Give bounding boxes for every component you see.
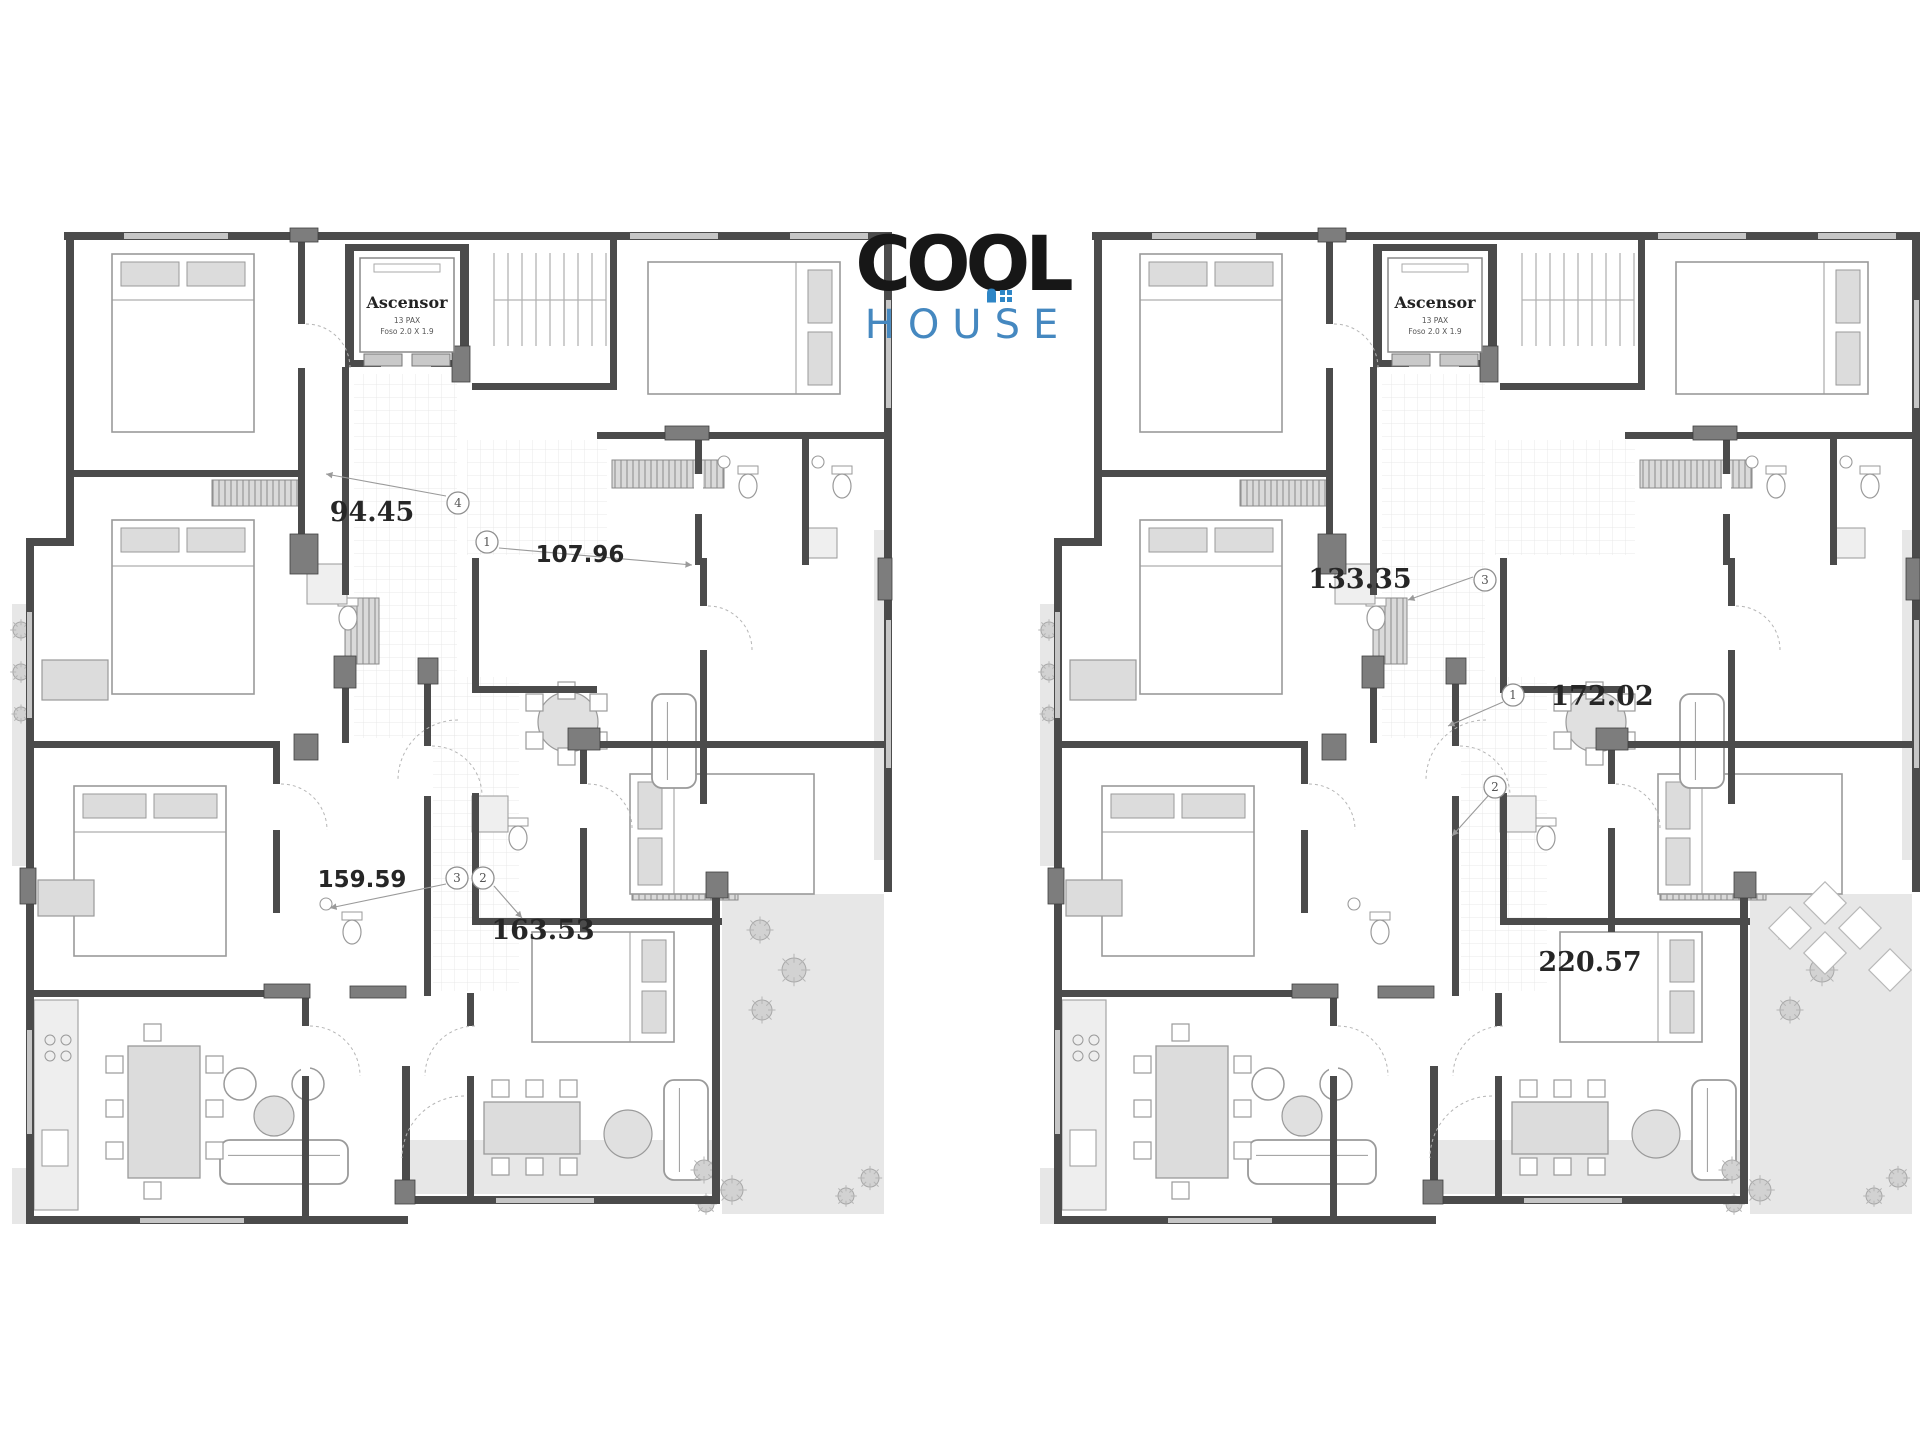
area-label: 107.96 — [536, 542, 625, 568]
logo-icons — [986, 287, 1013, 303]
floor-plans-page: Ascensor13 PAXFoso 2.0 X 1.994.45107.961… — [0, 0, 1920, 1440]
elevator-capacity: 13 PAX — [394, 316, 420, 325]
elevator-pit-size: Foso 2.0 X 1.9 — [1408, 327, 1462, 336]
area-label: 133.35 — [1308, 564, 1411, 595]
elevator-title: Ascensor — [1393, 293, 1476, 312]
unit-marker: 1 — [1502, 684, 1524, 706]
area-label: 220.57 — [1538, 947, 1641, 978]
area-label: 163.53 — [491, 915, 594, 946]
unit-marker: 3 — [446, 867, 468, 889]
logo-word-house: HOUSE — [838, 302, 1098, 348]
stairs — [1522, 253, 1634, 346]
area-label: 159.59 — [318, 867, 407, 893]
svg-text:2: 2 — [479, 871, 487, 885]
elevator-title: Ascensor — [365, 293, 448, 312]
unit-marker: 4 — [447, 492, 469, 514]
svg-text:3: 3 — [1481, 573, 1489, 587]
area-label: 94.45 — [330, 497, 415, 528]
cool-house-logo: COOL HOUSE — [826, 226, 1098, 348]
svg-text:3: 3 — [453, 871, 461, 885]
elevator-pit-size: Foso 2.0 X 1.9 — [380, 327, 434, 336]
svg-text:4: 4 — [454, 496, 462, 510]
svg-text:1: 1 — [483, 535, 491, 549]
elevator: Ascensor13 PAXFoso 2.0 X 1.9 — [1388, 258, 1482, 366]
svg-text:1: 1 — [1509, 688, 1517, 702]
unit-marker: 2 — [1484, 776, 1506, 798]
window-icon — [1000, 290, 1013, 303]
logo-word-cool: COOL — [826, 226, 1098, 302]
svg-text:2: 2 — [1491, 780, 1499, 794]
unit-marker: 2 — [472, 867, 494, 889]
unit-marker: 3 — [1474, 569, 1496, 591]
door-icon — [986, 287, 997, 303]
unit-marker: 1 — [476, 531, 498, 553]
elevator-capacity: 13 PAX — [1422, 316, 1448, 325]
stairs — [494, 253, 606, 346]
plans-canvas: Ascensor13 PAXFoso 2.0 X 1.994.45107.961… — [0, 0, 1920, 1440]
elevator: Ascensor13 PAXFoso 2.0 X 1.9 — [360, 258, 454, 366]
area-label: 172.02 — [1550, 681, 1653, 712]
floor-plan-left: Ascensor13 PAXFoso 2.0 X 1.9 — [10, 228, 892, 1224]
floor-plan-right: Ascensor13 PAXFoso 2.0 X 1.9 — [1038, 228, 1920, 1224]
